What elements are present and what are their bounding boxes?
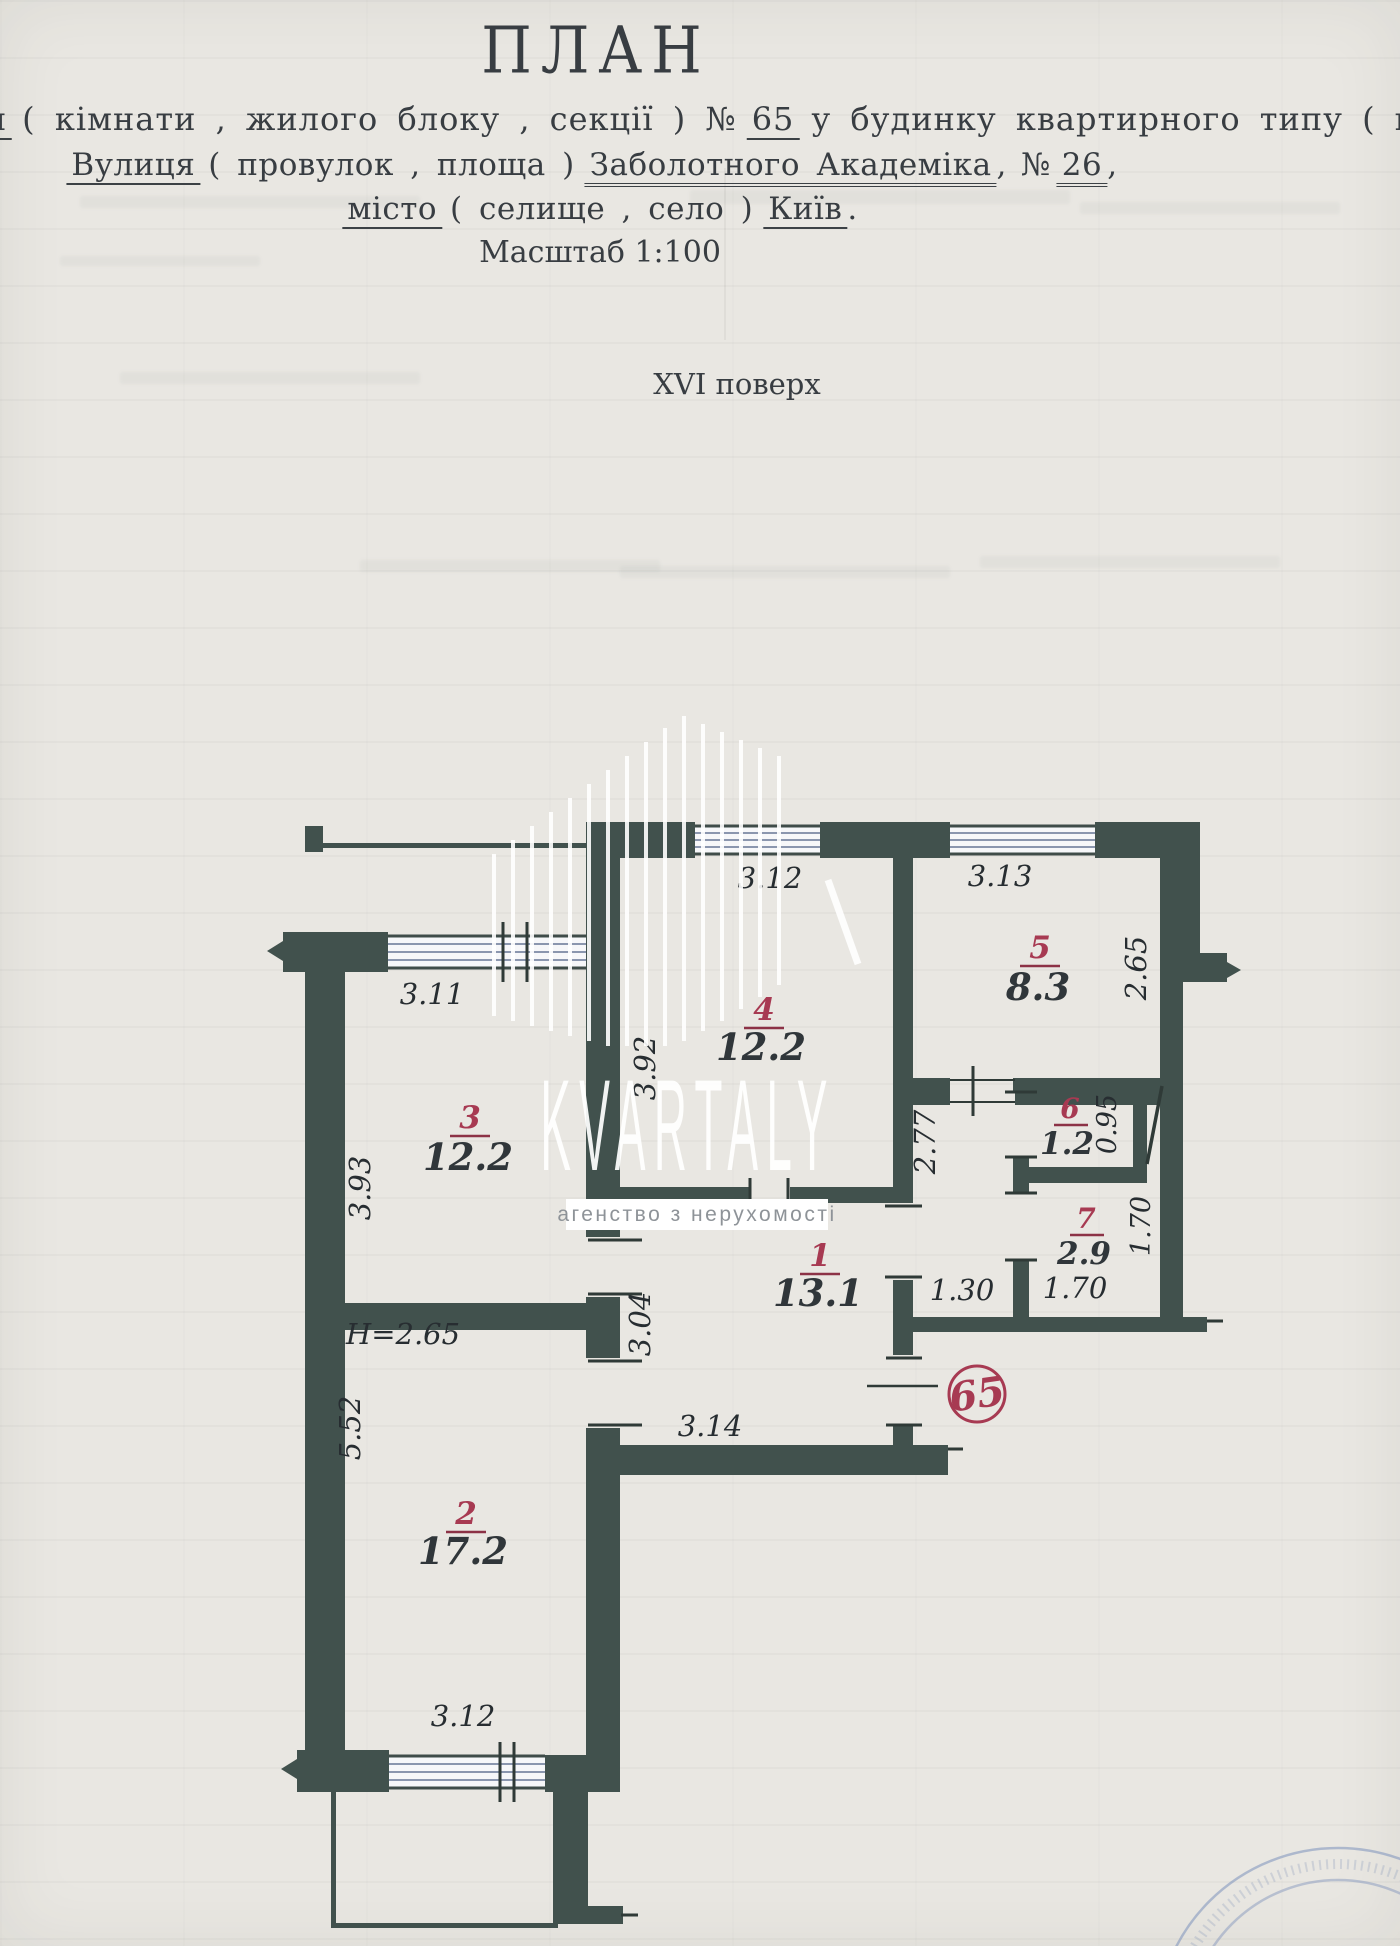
dim-room3-left: 3.93	[343, 1156, 377, 1221]
dim-hall-bottom: 1.30	[930, 1273, 995, 1307]
window-room3-top	[388, 922, 586, 982]
dim-room4-top: 3.12	[738, 861, 803, 895]
room-5-label: 5 8.3	[1005, 930, 1070, 1009]
dim-hall-bottom-width: 3.14	[678, 1409, 743, 1443]
watermark-logo-diagonal	[828, 880, 858, 964]
dim-room7-right: 1.70	[1126, 1196, 1157, 1256]
official-stamp	[1156, 1848, 1400, 1946]
apartment-number-value: 65	[946, 1367, 1008, 1421]
room-3-number: 3	[459, 1100, 481, 1136]
window-room2-bottom	[389, 1742, 545, 1802]
dim-room5-right: 2.65	[1119, 936, 1153, 1002]
dim-hall-upper: 2.77	[908, 1109, 942, 1175]
floor-plan-drawing: 3.11 3.12 3.13 3.92 3.93 2.65 2.77 0.95 …	[0, 0, 1400, 1946]
agency-watermark: KVARTALY агенство з нерухомості	[492, 716, 858, 1230]
apartment-number-stamp: 65	[946, 1366, 1008, 1422]
dim-room2-left: 5.52	[333, 1396, 367, 1461]
dim-hall-left: 3.04	[623, 1292, 657, 1357]
room-3-label: 3 12.2	[423, 1100, 513, 1179]
window-room5-top	[950, 825, 1095, 855]
scanned-floor-plan-document: ПЛАН вартири( кімнати , жилого блоку , с…	[0, 0, 1400, 1946]
dim-room7-bottom: 1.70	[1043, 1271, 1108, 1305]
room-1-number: 1	[809, 1238, 831, 1274]
room-1-area: 13.1	[773, 1271, 863, 1315]
room-2-area: 17.2	[418, 1529, 508, 1573]
room-2-number: 2	[454, 1496, 477, 1532]
room-1-label: 1 13.1	[773, 1238, 863, 1315]
dim-room6-right: 0.95	[1092, 1094, 1123, 1154]
watermark-brand: KVARTALY	[540, 1053, 835, 1198]
room-6-number: 6	[1060, 1092, 1079, 1125]
watermark-tagline: агенство з нерухомості	[557, 1203, 836, 1226]
room-2-label: 2 17.2	[418, 1496, 508, 1573]
room-5-number: 5	[1029, 930, 1051, 966]
window-room4-top	[695, 825, 820, 855]
room-7-label: 7 2.9	[1056, 1202, 1111, 1272]
dim-room3-top: 3.11	[400, 977, 465, 1011]
dim-room5-top: 3.13	[968, 859, 1033, 893]
room-4-number: 4	[753, 992, 775, 1028]
room-7-number: 7	[1076, 1202, 1096, 1235]
room-6-area: 1.2	[1040, 1126, 1094, 1162]
ceiling-height-label: H=2.65	[345, 1317, 460, 1351]
room-5-area: 8.3	[1005, 965, 1070, 1009]
room-3-area: 12.2	[423, 1135, 513, 1179]
dim-room2-bottom: 3.12	[431, 1699, 496, 1733]
room-7-area: 2.9	[1056, 1236, 1111, 1272]
